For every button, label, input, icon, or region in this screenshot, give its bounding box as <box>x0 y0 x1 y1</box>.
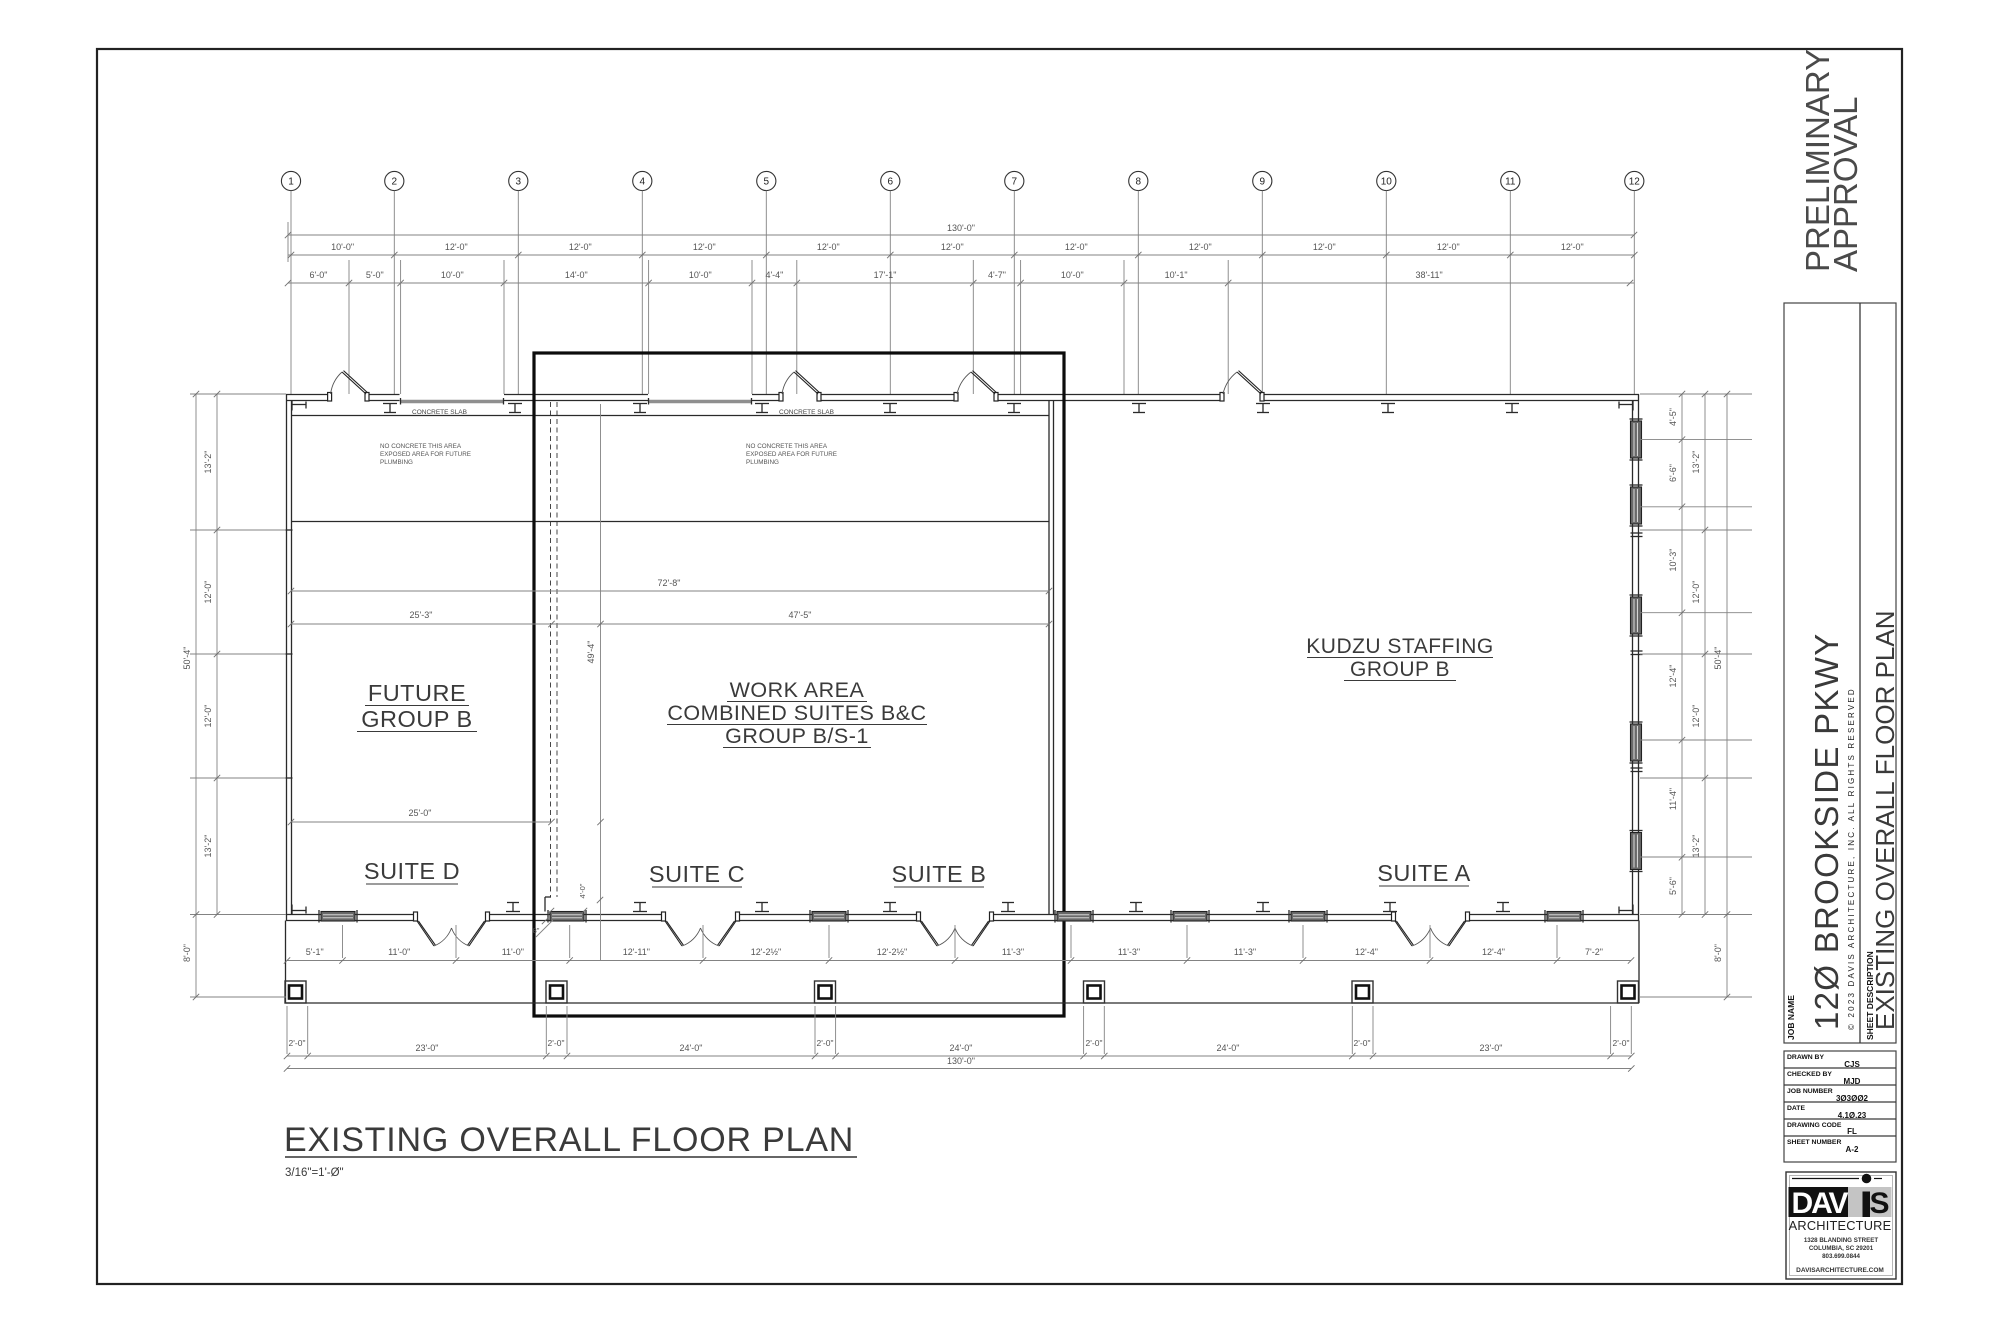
svg-text:FL: FL <box>1847 1127 1857 1136</box>
svg-text:2'-0": 2'-0" <box>1354 1038 1371 1048</box>
svg-text:11'-3": 11'-3" <box>1118 947 1140 957</box>
svg-text:JOB NUMBER: JOB NUMBER <box>1787 1088 1833 1095</box>
svg-text:WORK AREA: WORK AREA <box>730 678 865 702</box>
svg-text:12'-0": 12'-0" <box>1189 242 1212 252</box>
svg-text:12'-0": 12'-0" <box>1065 242 1088 252</box>
svg-text:DRAWING CODE: DRAWING CODE <box>1787 1122 1842 1129</box>
svg-text:2: 2 <box>392 177 398 188</box>
svg-text:10: 10 <box>1381 177 1393 188</box>
svg-text:5: 5 <box>764 177 770 188</box>
svg-text:CHECKED BY: CHECKED BY <box>1787 1071 1832 1078</box>
svg-text:10'-0": 10'-0" <box>689 270 712 280</box>
svg-text:COMBINED SUITES B&C: COMBINED SUITES B&C <box>667 701 926 725</box>
svg-text:CONCRETE SLAB: CONCRETE SLAB <box>412 409 467 416</box>
svg-text:ARCHITECTURE: ARCHITECTURE <box>1789 1218 1892 1233</box>
svg-text:SUITE C: SUITE C <box>649 861 745 887</box>
svg-text:13'-2": 13'-2" <box>1691 451 1701 474</box>
svg-text:DRAWN BY: DRAWN BY <box>1787 1054 1824 1061</box>
svg-text:11'-3": 11'-3" <box>1002 947 1024 957</box>
svg-text:11'-3": 11'-3" <box>1234 947 1256 957</box>
svg-text:50'-4": 50'-4" <box>182 647 192 670</box>
svg-text:12'-4": 12'-4" <box>1482 947 1505 957</box>
svg-text:5'-1": 5'-1" <box>306 947 324 957</box>
svg-text:10'-3": 10'-3" <box>1668 549 1678 572</box>
svg-text:2'-0": 2'-0" <box>1086 1038 1103 1048</box>
svg-text:3/16"=1'-Ø": 3/16"=1'-Ø" <box>285 1167 344 1179</box>
svg-text:8'-0": 8'-0" <box>1713 944 1723 962</box>
svg-text:50'-4": 50'-4" <box>1713 647 1723 670</box>
svg-text:SUITE A: SUITE A <box>1377 860 1471 886</box>
svg-text:24'-0": 24'-0" <box>950 1043 973 1053</box>
svg-text:GROUP B/S-1: GROUP B/S-1 <box>725 724 869 748</box>
svg-text:8: 8 <box>1136 177 1142 188</box>
svg-text:SUITE B: SUITE B <box>892 861 987 887</box>
svg-text:3Ø3ØØ2: 3Ø3ØØ2 <box>1836 1094 1869 1103</box>
svg-text:24'-0": 24'-0" <box>680 1043 703 1053</box>
svg-text:12'-0": 12'-0" <box>817 242 840 252</box>
svg-text:EXPOSED AREA FOR FUTURE: EXPOSED AREA FOR FUTURE <box>380 451 471 458</box>
svg-text:6: 6 <box>888 177 894 188</box>
svg-text:JOB NAME: JOB NAME <box>1786 995 1796 1040</box>
svg-text:12'-0": 12'-0" <box>203 705 213 728</box>
svg-text:12'-2½": 12'-2½" <box>877 947 907 957</box>
svg-text:8'-0": 8'-0" <box>182 944 192 962</box>
svg-text:S: S <box>1869 1187 1889 1220</box>
svg-text:SHEET NUMBER: SHEET NUMBER <box>1787 1139 1841 1146</box>
svg-text:14'-0": 14'-0" <box>565 270 588 280</box>
svg-text:1: 1 <box>288 177 294 188</box>
svg-text:2'-0": 2'-0" <box>1613 1038 1630 1048</box>
svg-text:MJD: MJD <box>1844 1077 1861 1086</box>
svg-text:CONCRETE SLAB: CONCRETE SLAB <box>779 409 834 416</box>
svg-text:12'-0": 12'-0" <box>1561 242 1584 252</box>
svg-text:A-2: A-2 <box>1846 1145 1859 1154</box>
svg-text:23'-0": 23'-0" <box>416 1043 439 1053</box>
svg-text:130'-0": 130'-0" <box>947 223 975 233</box>
svg-text:2'-0": 2'-0" <box>289 1038 306 1048</box>
svg-text:4'-0": 4'-0" <box>578 883 587 898</box>
svg-text:23'-0": 23'-0" <box>1480 1043 1503 1053</box>
svg-text:10'-1": 10'-1" <box>1165 270 1188 280</box>
svg-text:12Ø BROOKSIDE PKWY: 12Ø BROOKSIDE PKWY <box>1808 632 1845 1030</box>
svg-text:130'-0": 130'-0" <box>947 1056 975 1066</box>
svg-text:6'-6": 6'-6" <box>1668 464 1678 482</box>
svg-text:12'-2½": 12'-2½" <box>751 947 781 957</box>
svg-text:6'-0": 6'-0" <box>310 270 328 280</box>
svg-text:SUITE D: SUITE D <box>364 858 460 884</box>
svg-text:EXISTING OVERALL FLOOR PLAN: EXISTING OVERALL FLOOR PLAN <box>284 1121 854 1159</box>
svg-text:12'-0": 12'-0" <box>1437 242 1460 252</box>
svg-text:49'-4": 49'-4" <box>586 641 596 664</box>
svg-text:4'-4": 4'-4" <box>765 270 783 280</box>
svg-text:GROUP B: GROUP B <box>1350 658 1450 681</box>
svg-text:2'-0": 2'-0" <box>548 1038 565 1048</box>
svg-text:DAVISARCHITECTURE.COM: DAVISARCHITECTURE.COM <box>1796 1267 1884 1274</box>
svg-text:FUTURE: FUTURE <box>368 680 466 706</box>
svg-text:10'-0": 10'-0" <box>1061 270 1084 280</box>
svg-text:10'-0": 10'-0" <box>441 270 464 280</box>
svg-text:7: 7 <box>1012 177 1018 188</box>
svg-text:© 2023 DAVIS ARCHITECTURE,: © 2023 DAVIS ARCHITECTURE, INC. ALL RIGH… <box>1847 687 1856 1030</box>
svg-text:GROUP B: GROUP B <box>361 706 472 732</box>
svg-text:13'-2": 13'-2" <box>1691 835 1701 858</box>
svg-text:11'-4": 11'-4" <box>1668 788 1678 810</box>
svg-text:47'-5": 47'-5" <box>789 610 812 620</box>
svg-text:EXPOSED AREA FOR FUTURE: EXPOSED AREA FOR FUTURE <box>746 451 837 458</box>
svg-text:13'-2": 13'-2" <box>203 451 213 474</box>
svg-text:4'-5": 4'-5" <box>1668 408 1678 426</box>
svg-text:EXISTING OVERALL FLOOR PLAN: EXISTING OVERALL FLOOR PLAN <box>1870 611 1900 1031</box>
svg-text:3: 3 <box>516 177 522 188</box>
svg-text:38'-11": 38'-11" <box>1415 270 1442 280</box>
svg-text:4'-7": 4'-7" <box>988 270 1006 280</box>
svg-text:4: 4 <box>640 177 646 188</box>
svg-text:12: 12 <box>1629 177 1641 188</box>
svg-text:NO CONCRETE THIS AREA: NO CONCRETE THIS AREA <box>746 443 828 450</box>
svg-text:11'-0": 11'-0" <box>388 947 410 957</box>
svg-text:APPROVAL: APPROVAL <box>1827 97 1864 272</box>
svg-text:12'-0": 12'-0" <box>445 242 468 252</box>
svg-text:12'-0": 12'-0" <box>693 242 716 252</box>
svg-text:KUDZU STAFFING: KUDZU STAFFING <box>1306 635 1493 658</box>
svg-text:NO CONCRETE THIS AREA: NO CONCRETE THIS AREA <box>380 443 462 450</box>
svg-text:25'-3": 25'-3" <box>410 610 433 620</box>
svg-text:12'-0": 12'-0" <box>569 242 592 252</box>
svg-text:5'-6": 5'-6" <box>1668 877 1678 895</box>
svg-text:12'-11": 12'-11" <box>623 947 650 957</box>
svg-text:12'-0": 12'-0" <box>1313 242 1336 252</box>
svg-text:PLUMBING: PLUMBING <box>746 459 779 466</box>
svg-text:5'-0": 5'-0" <box>366 270 384 280</box>
svg-text:4.1Ø.23: 4.1Ø.23 <box>1838 1111 1867 1120</box>
svg-text:12'-0": 12'-0" <box>1691 581 1701 604</box>
svg-text:2'-0": 2'-0" <box>817 1038 834 1048</box>
svg-text:DATE: DATE <box>1787 1105 1805 1112</box>
svg-text:12'-4": 12'-4" <box>1668 665 1678 688</box>
svg-text:DAV: DAV <box>1791 1187 1848 1220</box>
svg-text:72'-8": 72'-8" <box>658 578 681 588</box>
svg-text:12'-0": 12'-0" <box>941 242 964 252</box>
svg-text:12'-0": 12'-0" <box>203 581 213 604</box>
svg-text:12'-0": 12'-0" <box>1691 705 1701 728</box>
svg-text:12'-4": 12'-4" <box>1355 947 1378 957</box>
svg-text:8": 8" <box>533 926 540 935</box>
svg-text:CJS: CJS <box>1844 1060 1860 1069</box>
svg-text:9: 9 <box>1260 177 1266 188</box>
svg-text:PLUMBING: PLUMBING <box>380 459 413 466</box>
svg-text:COLUMBIA, SC 29201: COLUMBIA, SC 29201 <box>1809 1245 1874 1252</box>
svg-text:24'-0": 24'-0" <box>1217 1043 1240 1053</box>
svg-text:803.699.0844: 803.699.0844 <box>1822 1253 1860 1260</box>
svg-text:17'-1": 17'-1" <box>874 270 897 280</box>
svg-text:11: 11 <box>1505 177 1516 188</box>
svg-text:1328 BLANDING STREET: 1328 BLANDING STREET <box>1804 1237 1878 1244</box>
svg-text:7'-2": 7'-2" <box>1585 947 1603 957</box>
svg-text:25'-0": 25'-0" <box>409 808 432 818</box>
svg-text:11'-0": 11'-0" <box>502 947 524 957</box>
svg-text:10'-0": 10'-0" <box>331 242 354 252</box>
svg-text:13'-2": 13'-2" <box>203 835 213 858</box>
